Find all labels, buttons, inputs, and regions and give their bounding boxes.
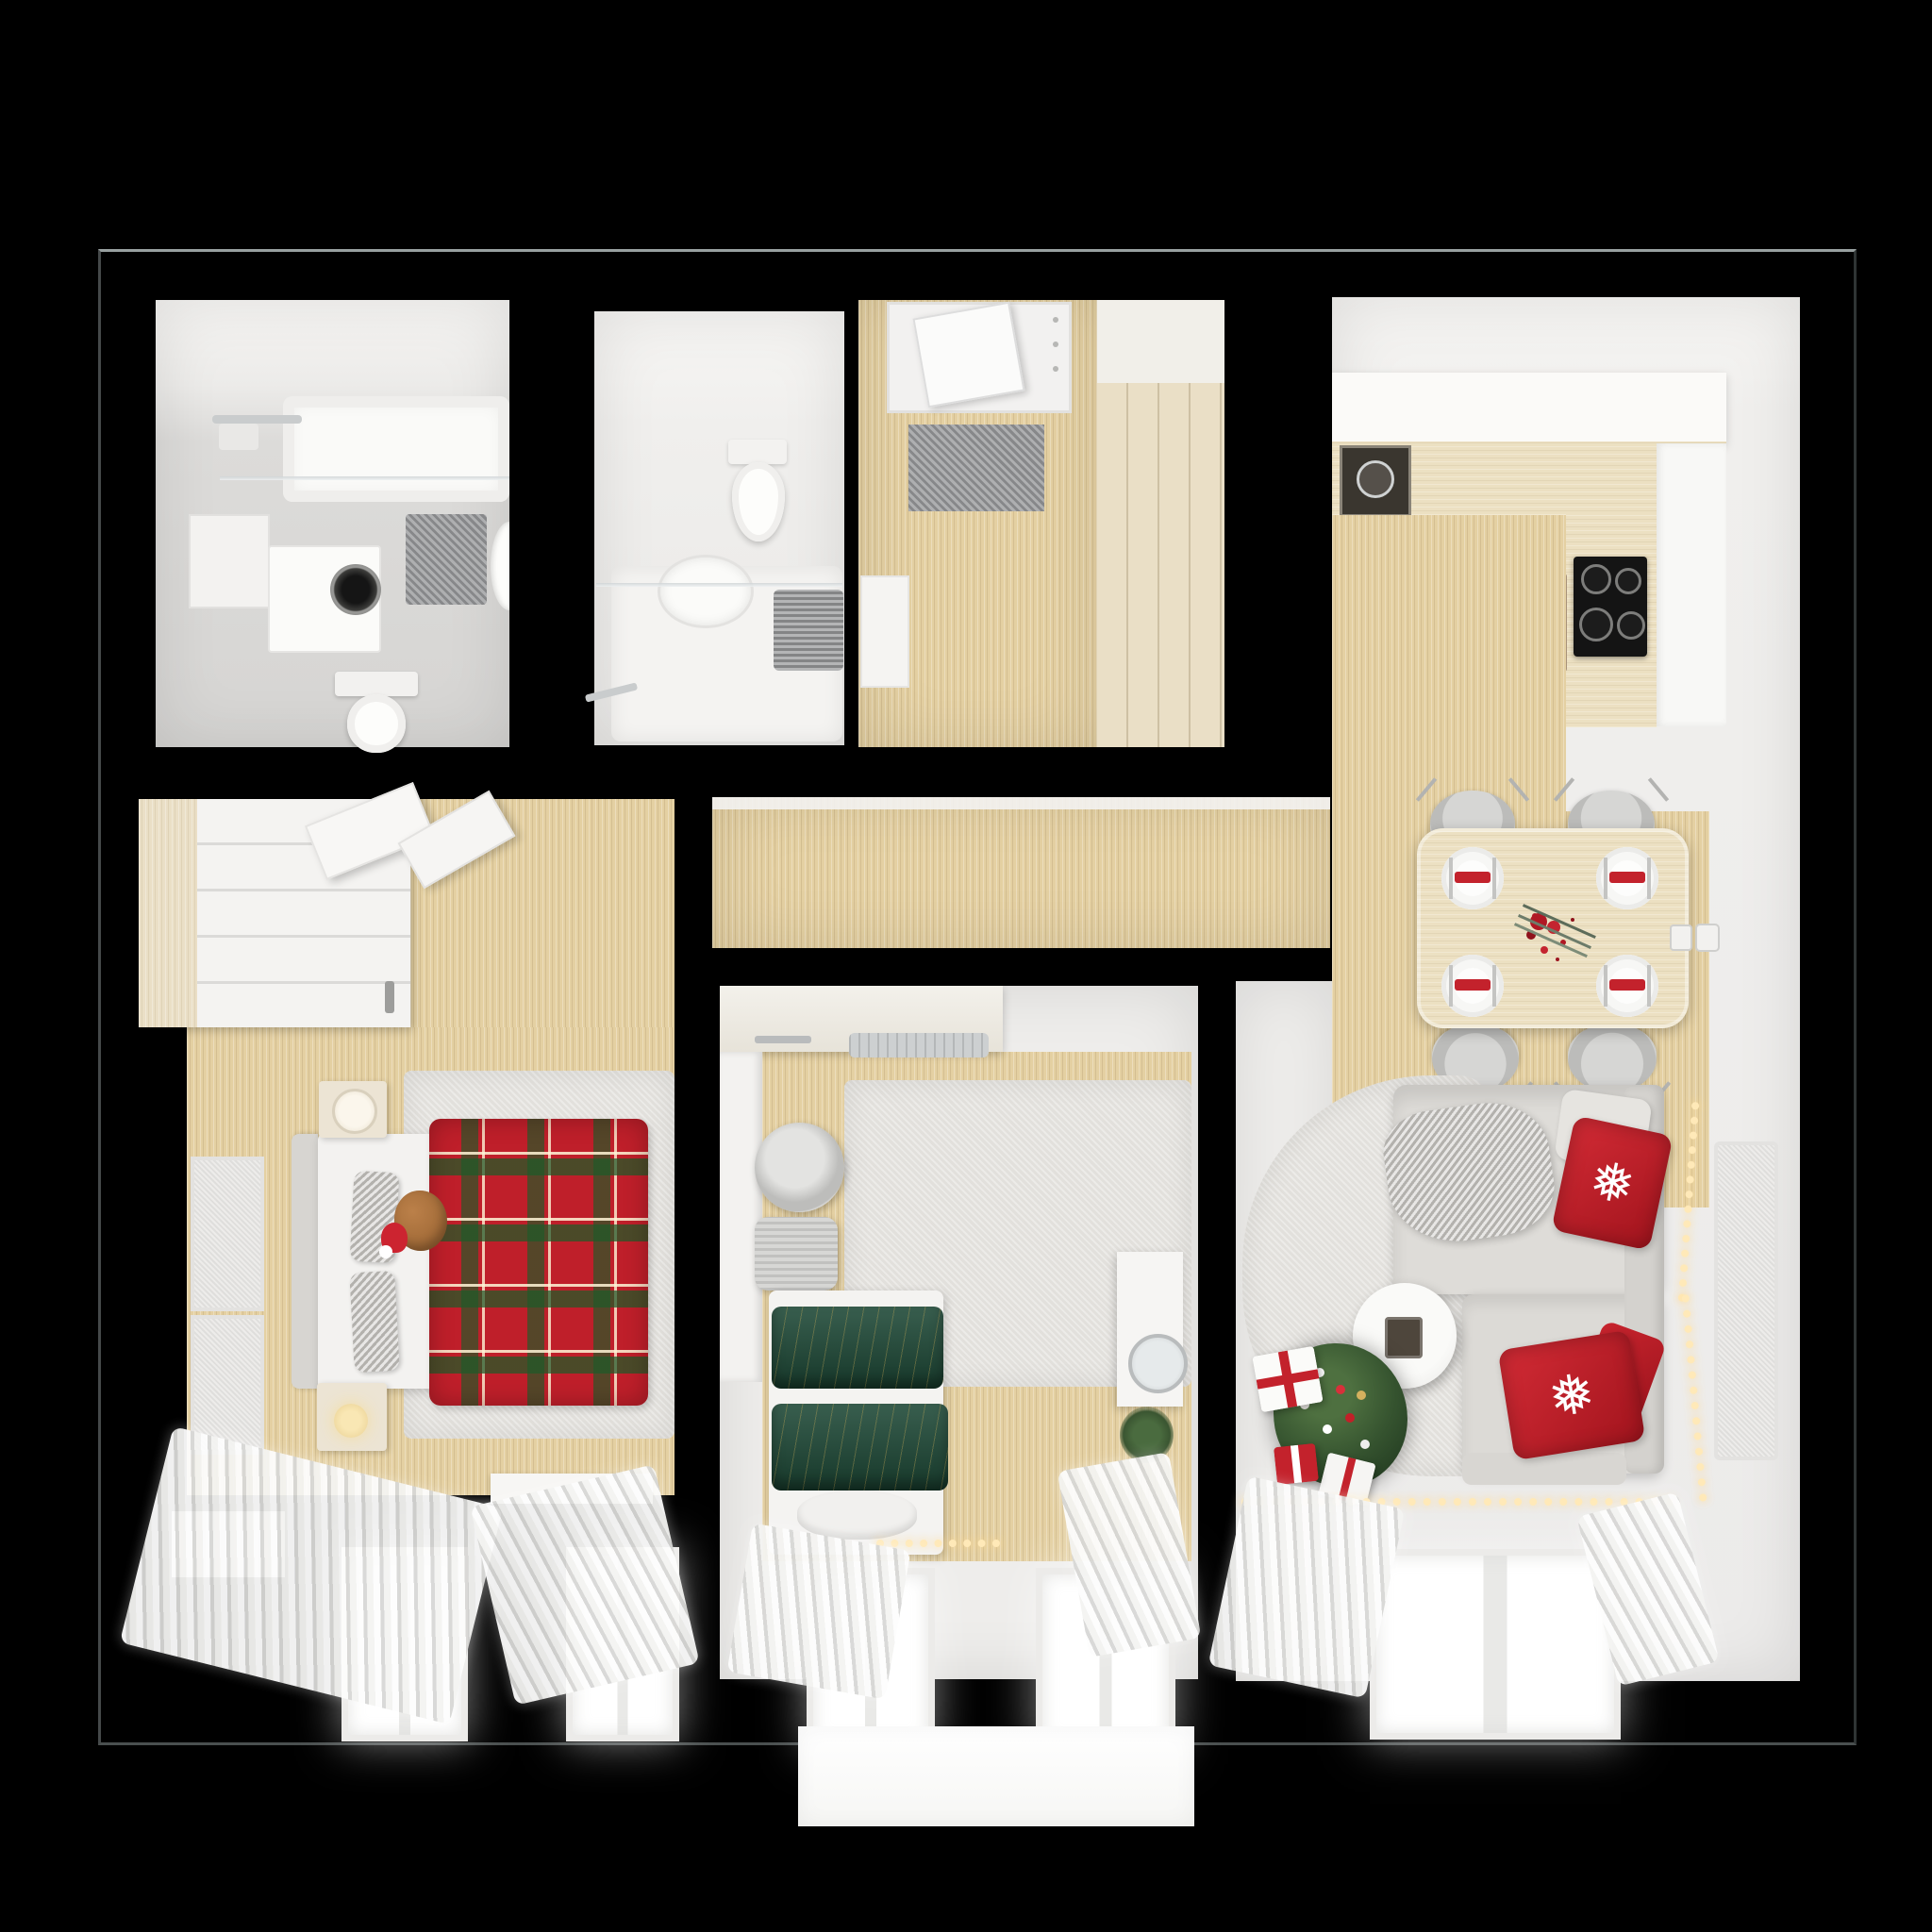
laundry-basket: [755, 1217, 838, 1291]
towel-rail: [212, 415, 302, 424]
console-shelf: [860, 575, 909, 688]
napkin-ring: [1455, 979, 1491, 991]
gift-box-1: [1252, 1346, 1323, 1413]
kids-curtain-left: [726, 1523, 910, 1699]
napkin-ring: [1609, 872, 1645, 883]
bath-mat: [406, 514, 487, 605]
place-setting-3: [1441, 955, 1504, 1017]
green-duvet-fold-1: [772, 1307, 943, 1389]
wall-art-1: [191, 1157, 264, 1311]
coffee-table-gift: [1385, 1317, 1423, 1358]
wall-panel: [1714, 1141, 1778, 1460]
counter-column-side: [1657, 443, 1726, 726]
gift-box-3: [1274, 1443, 1319, 1485]
snowflake-icon: ❅: [1544, 1360, 1600, 1431]
burner-4: [1617, 611, 1645, 640]
burner-1: [1581, 564, 1611, 594]
bathtub: [283, 396, 509, 502]
tartan-plaid: [429, 1119, 648, 1406]
wardrobe-handle: [385, 981, 394, 1013]
grey-towel: [774, 590, 843, 671]
floor-plan-render: ❅ ❅: [0, 0, 1932, 1932]
faucet: [1357, 460, 1394, 498]
corridor-ceiling-trim: [712, 797, 1330, 809]
master-pillow-2: [349, 1271, 399, 1373]
fairy-lights: [876, 1540, 1000, 1547]
snowflake-icon: ❅: [1584, 1148, 1640, 1217]
room-corridor: [712, 797, 1330, 948]
wc-glass-screen: [596, 583, 842, 587]
candle: [334, 1404, 368, 1438]
kids-pillow: [797, 1491, 917, 1540]
napkin-ring: [1609, 979, 1645, 991]
table-lamp: [332, 1089, 377, 1134]
air-conditioner: [849, 1033, 989, 1058]
round-pouf: [755, 1123, 844, 1212]
doormat: [908, 425, 1044, 511]
shower-tub: [658, 555, 754, 628]
desk-handle: [755, 1036, 811, 1043]
napkin-ring: [1455, 872, 1491, 883]
kids-wardrobe-column: [720, 1052, 762, 1382]
toilet-bowl-bathroom: [347, 694, 406, 753]
upper-cabinets: [1332, 373, 1726, 444]
place-setting-2: [1596, 847, 1658, 909]
place-setting-4: [1596, 955, 1658, 1017]
entrance-door-leaf: [912, 302, 1024, 408]
wall-outlet: [1670, 924, 1692, 951]
master-bed-headboard: [291, 1134, 318, 1389]
place-setting-1: [1441, 847, 1504, 909]
living-window: [1370, 1549, 1621, 1740]
hall-wardrobe-top: [1097, 300, 1224, 383]
shower-glass-screen: [220, 476, 509, 480]
master-wardrobe-side: [139, 799, 197, 1027]
snowflake-cushion-2: ❅: [1498, 1330, 1646, 1460]
sofa-armrest: [1462, 1453, 1626, 1485]
burner-3: [1579, 608, 1613, 641]
washer-door: [330, 564, 381, 615]
towel: [219, 424, 258, 450]
round-mirror: [1128, 1334, 1188, 1393]
wall-cabinet: [189, 514, 270, 608]
dining-chair-4: [1568, 1024, 1657, 1092]
balcony-slab: [798, 1726, 1194, 1826]
cooktop: [1574, 557, 1647, 657]
green-duvet-fold-2: [772, 1404, 948, 1491]
toilet-tank-wc: [728, 440, 787, 464]
burner-2: [1615, 568, 1641, 594]
santa-hat-pompom: [379, 1245, 392, 1258]
toilet-tank-bathroom: [335, 672, 418, 696]
door-hinges: [1053, 317, 1058, 323]
